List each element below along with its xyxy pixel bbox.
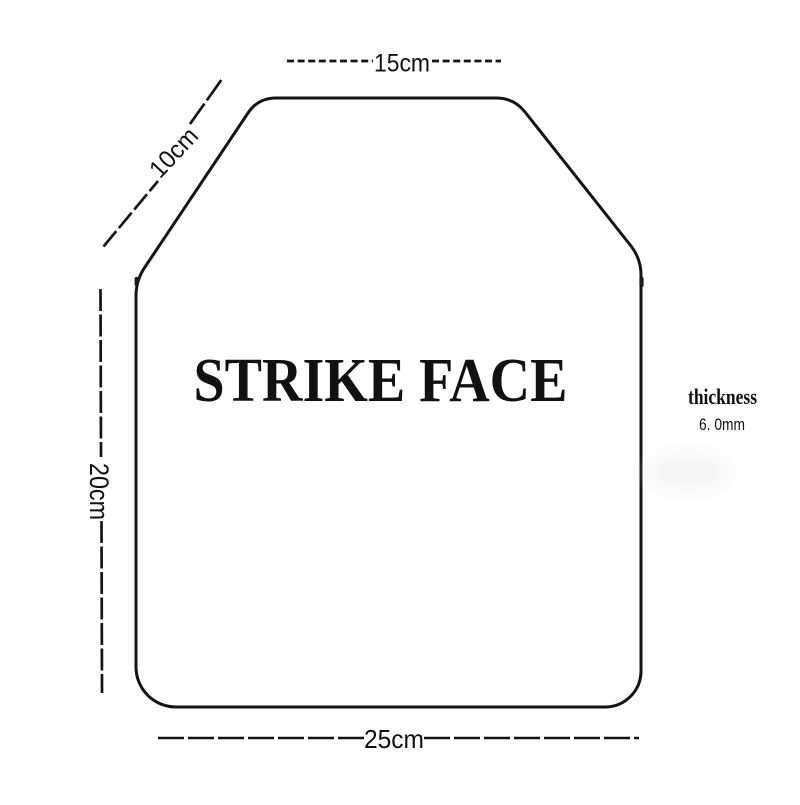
svg-text:STRIKE FACE: STRIKE FACE <box>194 347 568 415</box>
svg-text:6. 0mm: 6. 0mm <box>699 415 745 434</box>
svg-text:25cm: 25cm <box>364 724 424 754</box>
svg-text:20cm: 20cm <box>84 463 114 520</box>
svg-text:15cm: 15cm <box>374 50 430 78</box>
svg-text:thickness: thickness <box>688 384 757 409</box>
